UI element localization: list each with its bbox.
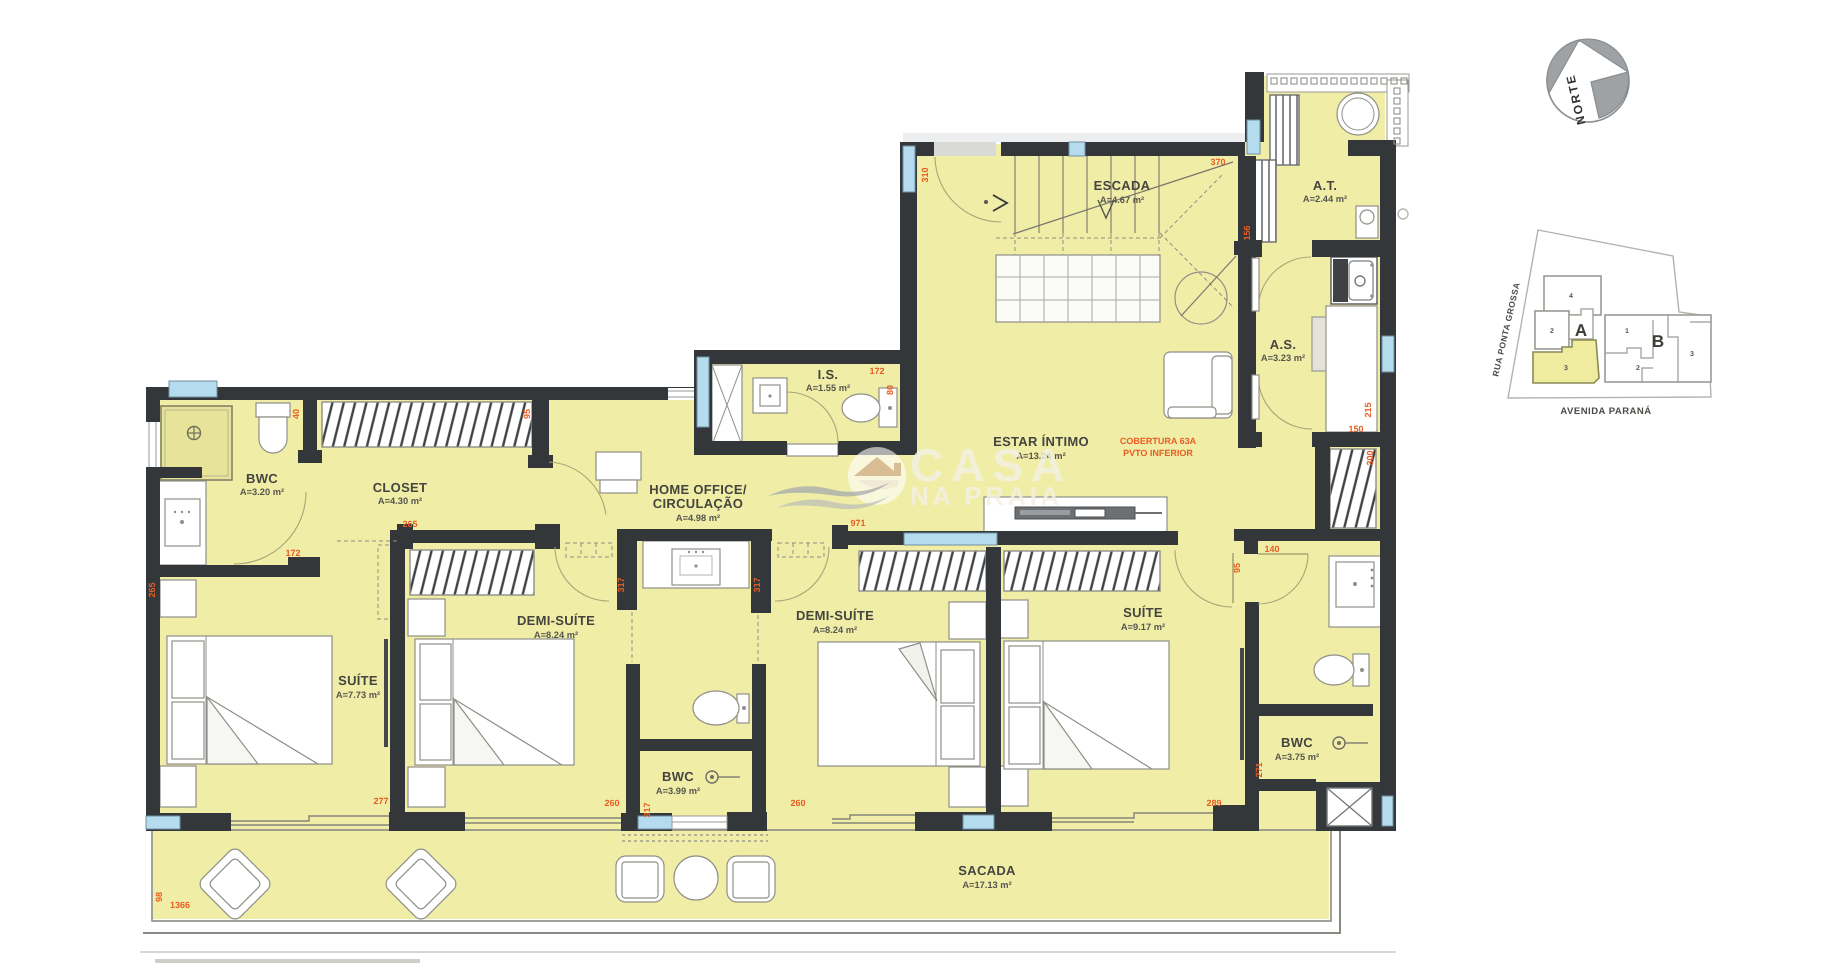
svg-text:A=8.24 m²: A=8.24 m² xyxy=(813,625,857,635)
svg-text:95: 95 xyxy=(522,409,532,419)
svg-text:HOME OFFICE/: HOME OFFICE/ xyxy=(649,482,747,497)
svg-text:265: 265 xyxy=(402,519,417,529)
svg-text:4: 4 xyxy=(1569,293,1573,300)
svg-text:1366: 1366 xyxy=(170,900,190,910)
svg-text:172: 172 xyxy=(869,366,884,376)
svg-text:ESCADA: ESCADA xyxy=(1094,178,1151,193)
svg-text:B: B xyxy=(1652,332,1664,351)
svg-text:CIRCULAÇÃO: CIRCULAÇÃO xyxy=(653,496,743,511)
svg-text:PVTO INFERIOR: PVTO INFERIOR xyxy=(1123,448,1193,458)
svg-text:98: 98 xyxy=(154,892,164,902)
svg-text:A=3.20 m²: A=3.20 m² xyxy=(240,487,284,497)
svg-text:A=4.30 m²: A=4.30 m² xyxy=(378,496,422,506)
svg-text:BWC: BWC xyxy=(246,471,278,486)
svg-text:I.S.: I.S. xyxy=(818,367,839,382)
svg-text:A=7.73 m²: A=7.73 m² xyxy=(336,690,380,700)
svg-text:A=3.99 m²: A=3.99 m² xyxy=(656,786,700,796)
svg-text:271: 271 xyxy=(1254,762,1264,777)
svg-text:317: 317 xyxy=(752,577,762,592)
svg-text:156: 156 xyxy=(1242,225,1252,240)
svg-text:260: 260 xyxy=(604,798,619,808)
svg-text:A=3.75 m²: A=3.75 m² xyxy=(1275,752,1319,762)
svg-text:NA PRAIA: NA PRAIA xyxy=(910,481,1063,511)
svg-text:BWC: BWC xyxy=(662,769,694,784)
svg-text:A=3.23 m²: A=3.23 m² xyxy=(1261,353,1305,363)
svg-text:150: 150 xyxy=(1348,424,1363,434)
svg-text:COBERTURA 63A: COBERTURA 63A xyxy=(1120,436,1197,446)
svg-text:A=1.55 m²: A=1.55 m² xyxy=(806,383,850,393)
svg-text:289: 289 xyxy=(1206,798,1221,808)
svg-text:2: 2 xyxy=(1550,328,1554,335)
svg-text:SACADA: SACADA xyxy=(958,863,1016,878)
svg-text:A=4.98 m²: A=4.98 m² xyxy=(676,513,720,523)
svg-text:3: 3 xyxy=(1690,351,1694,358)
svg-text:DEMI-SUÍTE: DEMI-SUÍTE xyxy=(517,613,595,628)
svg-text:A=8.24 m²: A=8.24 m² xyxy=(534,630,578,640)
svg-text:370: 370 xyxy=(1210,157,1225,167)
svg-text:DEMI-SUÍTE: DEMI-SUÍTE xyxy=(796,608,874,623)
svg-text:95: 95 xyxy=(1232,563,1242,573)
svg-text:SUÍTE: SUÍTE xyxy=(1123,605,1163,620)
svg-text:215: 215 xyxy=(1363,402,1373,417)
svg-text:A=17.13 m²: A=17.13 m² xyxy=(962,880,1011,890)
svg-text:300: 300 xyxy=(1365,450,1375,465)
svg-text:260: 260 xyxy=(790,798,805,808)
svg-text:40: 40 xyxy=(291,409,301,419)
svg-text:140: 140 xyxy=(1264,544,1279,554)
svg-text:CLOSET: CLOSET xyxy=(373,480,428,495)
svg-text:317: 317 xyxy=(616,577,626,592)
svg-text:A.S.: A.S. xyxy=(1270,337,1296,352)
svg-text:A.T.: A.T. xyxy=(1313,178,1337,193)
svg-text:80: 80 xyxy=(885,385,895,395)
svg-text:265: 265 xyxy=(147,582,157,597)
svg-text:A=9.17 m²: A=9.17 m² xyxy=(1121,622,1165,632)
svg-text:3: 3 xyxy=(1564,365,1568,372)
svg-text:A: A xyxy=(1575,321,1587,340)
svg-text:A=2.44 m²: A=2.44 m² xyxy=(1303,194,1347,204)
svg-text:277: 277 xyxy=(373,796,388,806)
svg-text:2: 2 xyxy=(1636,365,1640,372)
svg-text:310: 310 xyxy=(920,167,930,182)
svg-text:971: 971 xyxy=(850,518,865,528)
svg-text:BWC: BWC xyxy=(1281,735,1313,750)
svg-text:A=4.67 m²: A=4.67 m² xyxy=(1100,195,1144,205)
svg-text:AVENIDA PARANÁ: AVENIDA PARANÁ xyxy=(1560,405,1651,417)
svg-text:317: 317 xyxy=(642,802,652,817)
svg-text:172: 172 xyxy=(285,548,300,558)
svg-text:1: 1 xyxy=(1625,328,1629,335)
svg-text:SUÍTE: SUÍTE xyxy=(338,673,378,688)
